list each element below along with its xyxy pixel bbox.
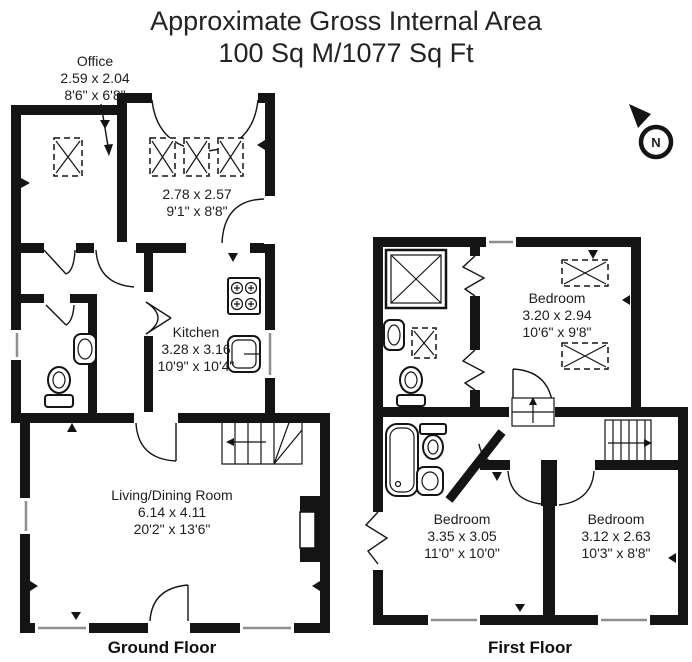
inner-wall: [470, 242, 480, 256]
skylight-icon: [54, 138, 82, 176]
floorplan-drawing: Approximate Gross Internal Area 100 Sq M…: [0, 0, 692, 662]
first-floor-plan: Bedroom 3.20 x 2.94 10'6" x 9'8" Bedroom…: [366, 236, 683, 657]
skylight-icon: [150, 138, 175, 176]
office-door-opening: [44, 242, 76, 254]
title-line2: 100 Sq M/1077 Sq Ft: [218, 38, 474, 68]
bedroom3-label: Bedroom: [588, 511, 645, 527]
top-room-dims-metric: 2.78 x 2.57: [162, 186, 231, 202]
office-dims-imperial: 8'6" x 6'8": [64, 87, 125, 103]
kitchen-opening: [186, 242, 250, 254]
hall-door-opening: [94, 242, 136, 254]
bedroom2-dims-imperial: 11'0" x 10'0": [424, 545, 500, 561]
toilet-icon: [45, 367, 73, 407]
living-door-opening: [134, 412, 178, 424]
title-line1: Approximate Gross Internal Area: [150, 6, 543, 36]
compass-n-label: N: [651, 135, 660, 150]
kitchen-dims-imperial: 10'9" x 10'4": [158, 358, 235, 374]
living-label: Living/Dining Room: [111, 487, 232, 503]
ground-floor-plan: Office 2.59 x 2.04 8'6" x 6'8" 2.78 x 2.…: [11, 53, 330, 657]
office-dims-metric: 2.59 x 2.04: [60, 70, 129, 86]
basin-icon: [74, 334, 96, 364]
skylight-icon: [562, 343, 608, 369]
skylight-icon: [218, 138, 243, 176]
basin-icon: [417, 467, 443, 495]
entrance-opening: [152, 91, 258, 104]
living-back-door-opening: [148, 621, 190, 634]
first-floor-label: First Floor: [488, 638, 572, 657]
inner-wall: [70, 294, 97, 303]
stairs-top-icon: [512, 397, 554, 426]
skylight-icon: [412, 328, 436, 358]
bedroom-divider-wall: [543, 506, 555, 620]
bedroom1-label: Bedroom: [529, 290, 586, 306]
top-room-dims-imperial: 9'1" x 8'8": [166, 203, 227, 219]
skylight-icon: [184, 138, 209, 176]
compass-icon: N: [629, 104, 671, 157]
inner-wall: [541, 460, 557, 506]
kitchen-label: Kitchen: [173, 324, 220, 340]
toilet-icon: [397, 367, 425, 406]
toilet-icon: [420, 424, 446, 459]
kitchen-dims-metric: 3.28 x 3.16: [161, 341, 230, 357]
compass-north-arrow: [629, 104, 651, 128]
side-door-opening: [264, 196, 276, 244]
ground-floor-label: Ground Floor: [108, 638, 217, 657]
bathtub-icon: [386, 424, 418, 496]
stove-icon: [228, 278, 260, 314]
shower-icon: [386, 250, 446, 308]
inner-wall: [470, 296, 480, 350]
bedroom1-dims-imperial: 10'6" x 9'8": [523, 324, 592, 340]
living-dims-imperial: 20'2" x 13'6": [134, 521, 211, 537]
living-dims-metric: 6.14 x 4.11: [138, 504, 206, 520]
office-label: Office: [77, 53, 114, 69]
inner-wall: [144, 248, 153, 292]
inner-wall: [16, 294, 44, 303]
bedroom3-dims-imperial: 10'3" x 8'8": [582, 545, 651, 561]
bedroom2-dims-metric: 3.35 x 3.05: [427, 528, 496, 544]
bedroom2-label: Bedroom: [434, 511, 491, 527]
skylight-icon: [562, 260, 608, 286]
basin-icon: [384, 320, 404, 350]
inner-wall: [144, 336, 153, 418]
bedroom3-dims-metric: 3.12 x 2.63: [581, 528, 650, 544]
inner-wall: [470, 390, 480, 412]
fireplace: [300, 496, 330, 562]
inner-wall: [595, 460, 683, 470]
bedroom1-dims-metric: 3.20 x 2.94: [522, 307, 591, 323]
floorplan-page: Approximate Gross Internal Area 100 Sq M…: [0, 0, 692, 662]
